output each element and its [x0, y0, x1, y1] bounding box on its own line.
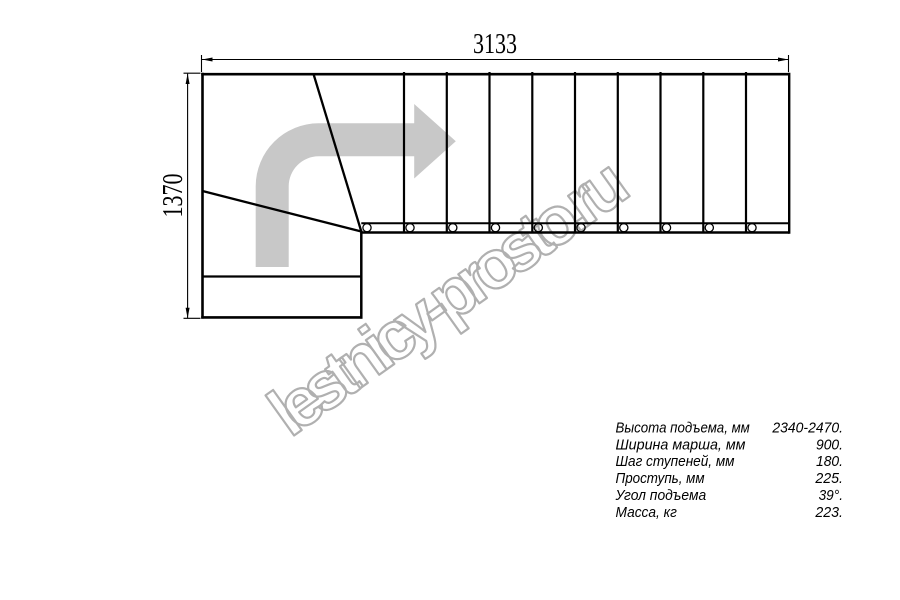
svg-text:225.: 225. [814, 470, 843, 487]
svg-text:Масса, кг: Масса, кг [616, 504, 678, 521]
svg-text:3133: 3133 [473, 27, 517, 60]
svg-text:180.: 180. [816, 453, 843, 470]
svg-text:2340-2470.: 2340-2470. [771, 419, 843, 436]
svg-text:223.: 223. [814, 504, 843, 521]
svg-text:900.: 900. [816, 436, 843, 453]
svg-text:Высота подъема, мм: Высота подъема, мм [616, 419, 750, 436]
svg-text:Шаг ступеней, мм: Шаг ступеней, мм [616, 453, 735, 470]
svg-text:Ширина марша, мм: Ширина марша, мм [616, 436, 746, 453]
svg-text:Проступь, мм: Проступь, мм [616, 470, 705, 487]
svg-text:39°.: 39°. [819, 487, 843, 504]
svg-text:Угол подъема: Угол подъема [615, 487, 707, 504]
svg-text:1370: 1370 [156, 173, 189, 217]
